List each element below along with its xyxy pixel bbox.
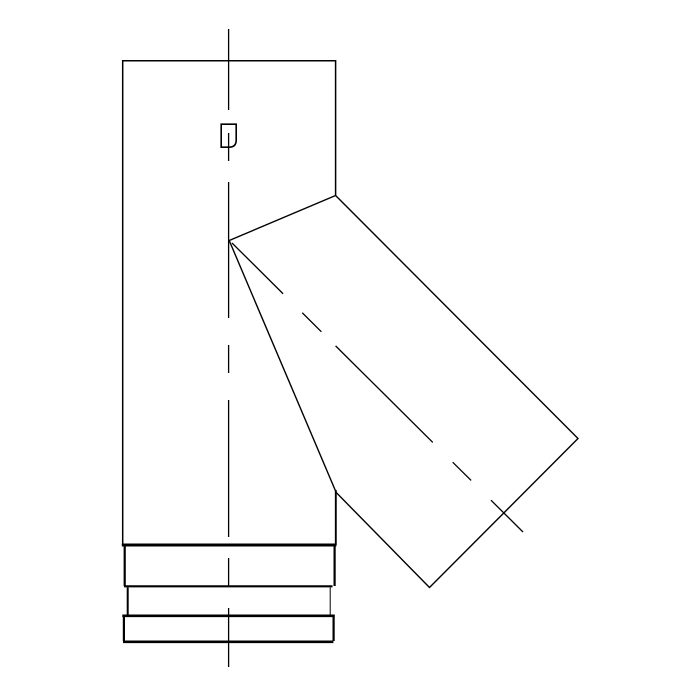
branch-outline (229, 196, 578, 588)
technical-drawing-page (0, 0, 700, 700)
branch-axis-centerline (232, 243, 523, 532)
branch-saddle-line (229, 196, 335, 241)
pipe-tee-drawing-svg (0, 0, 700, 700)
